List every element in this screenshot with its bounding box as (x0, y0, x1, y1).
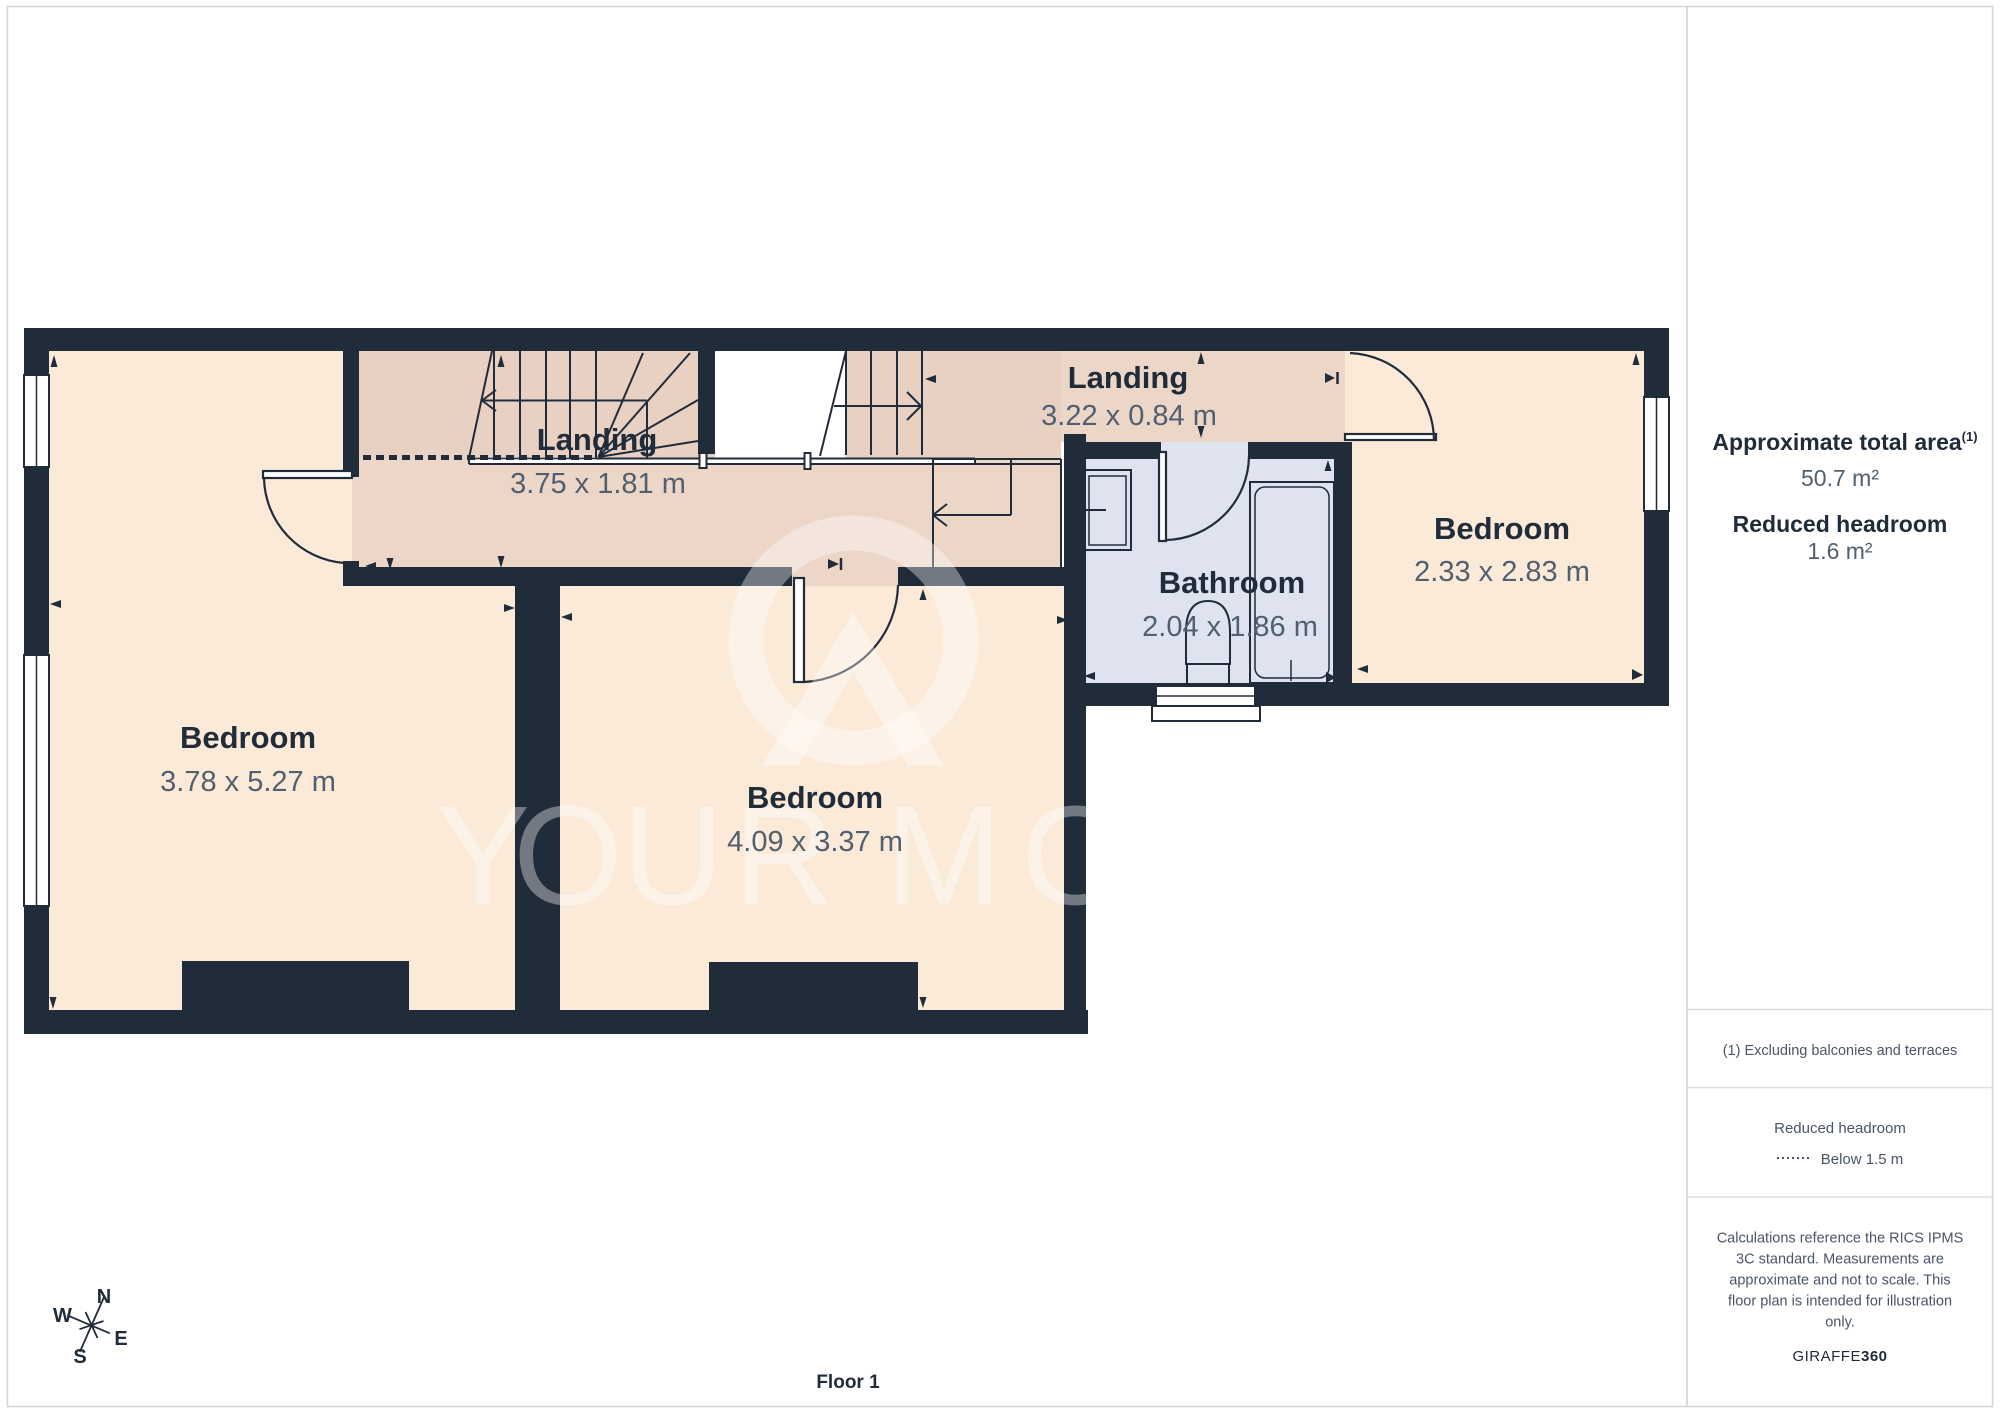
svg-text:3.75 x 1.81 m: 3.75 x 1.81 m (510, 468, 686, 500)
svg-text:3C standard. Measurements are: 3C standard. Measurements are (1736, 1252, 1944, 1268)
svg-text:2.33 x 2.83 m: 2.33 x 2.83 m (1414, 556, 1590, 588)
svg-text:2.04 x 1.86 m: 2.04 x 1.86 m (1142, 611, 1318, 643)
svg-text:O: O (513, 776, 623, 934)
svg-text:S: S (73, 1346, 86, 1368)
svg-text:Below 1.5 m: Below 1.5 m (1821, 1151, 1904, 1168)
svg-text:floor plan is intended for ill: floor plan is intended for illustration (1728, 1294, 1952, 1310)
svg-text:1.6 m²: 1.6 m² (1807, 538, 1873, 564)
svg-text:50.7 m²: 50.7 m² (1801, 465, 1879, 491)
svg-text:approximate and not to scale.: approximate and not to scale. This (1729, 1273, 1950, 1289)
svg-text:W: W (53, 1305, 72, 1327)
svg-text:Bedroom: Bedroom (180, 720, 316, 755)
svg-text:Reduced headroom: Reduced headroom (1774, 1120, 1906, 1137)
svg-text:GIRAFFE360: GIRAFFE360 (1792, 1348, 1887, 1365)
svg-text:Bathroom: Bathroom (1159, 565, 1305, 600)
svg-text:Bedroom: Bedroom (1434, 511, 1570, 546)
svg-text:3.78 x 5.27 m: 3.78 x 5.27 m (160, 766, 336, 798)
svg-text:Reduced headroom: Reduced headroom (1733, 511, 1948, 537)
svg-text:N: N (97, 1286, 111, 1308)
svg-text:(1) Excluding balconies and te: (1) Excluding balconies and terraces (1723, 1043, 1958, 1059)
svg-text:only.: only. (1825, 1315, 1855, 1331)
svg-text:Landing: Landing (537, 422, 658, 457)
svg-text:Bedroom: Bedroom (747, 780, 883, 815)
svg-text:Calculations reference the RIC: Calculations reference the RICS IPMS (1717, 1231, 1964, 1247)
svg-text:Approximate total area(1): Approximate total area(1) (1712, 429, 1977, 455)
svg-text:O: O (1021, 776, 1131, 934)
svg-text:4.09 x 3.37 m: 4.09 x 3.37 m (727, 826, 903, 858)
svg-text:3.22 x 0.84 m: 3.22 x 0.84 m (1041, 400, 1217, 432)
svg-text:U: U (622, 776, 724, 934)
svg-text:Landing: Landing (1068, 360, 1189, 395)
svg-text:E: E (114, 1328, 127, 1350)
svg-text:Floor 1: Floor 1 (816, 1372, 880, 1393)
